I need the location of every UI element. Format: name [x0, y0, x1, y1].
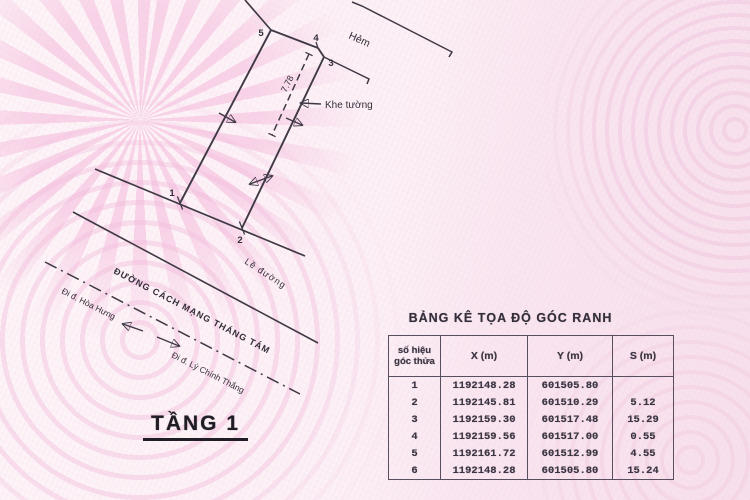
header-corner-id-line2: góc thửa: [389, 356, 440, 367]
alley-label: Hẻm: [347, 30, 372, 50]
cell-y: 601517.00: [528, 428, 613, 445]
table-header-row: số hiệu góc thửa X (m) Y (m) S (m): [389, 336, 674, 377]
cell-n: 1: [389, 377, 441, 395]
cell-n: 5: [389, 445, 441, 462]
cell-n: 4: [389, 428, 441, 445]
header-corner-id: số hiệu góc thửa: [389, 336, 441, 377]
direction-arrow-right: [157, 337, 179, 346]
cell-y: 601505.80: [528, 377, 613, 395]
wall-gap-pointer-arrow: [301, 103, 321, 104]
cell-y: 601512.99: [528, 445, 613, 462]
cell-s: 4.55: [613, 445, 674, 462]
boundary-coordinate-table: số hiệu góc thửa X (m) Y (m) S (m) 1 119…: [388, 335, 674, 480]
coordinate-table-title: BẢNG KÊ TỌA ĐỘ GÓC RANH: [378, 311, 643, 325]
direction-label-hoa-hung: Đi đ. Hòa Hưng: [60, 286, 117, 322]
table-row: 5 1192161.72 601512.99 4.55: [389, 445, 674, 462]
parcel-edge-3-4: [318, 48, 324, 57]
wall-arrow-bottom-edge: [250, 176, 272, 184]
cell-s: 5.12: [613, 394, 674, 411]
corner-label-4: 4: [313, 33, 319, 44]
table-row: 2 1192145.81 601510.29 5.12: [389, 394, 674, 411]
cell-s: 0.55: [613, 428, 674, 445]
direction-arrow-left: [123, 324, 143, 331]
cell-x: 1192148.28: [441, 462, 528, 480]
road-centerline: [45, 262, 300, 394]
floor-title: TẦNG 1: [143, 412, 248, 441]
corner-label-5: 5: [258, 28, 264, 39]
table-row: 6 1192148.28 601505.80 15.24: [389, 462, 674, 480]
cell-x: 1192159.30: [441, 411, 528, 428]
header-corner-id-line1: số hiệu: [389, 345, 440, 356]
header-s: S (m): [613, 336, 674, 377]
scanned-land-certificate-page: 1 2 3 4 5 Hẻm Khe tường 7.78 Lề đường ĐƯ…: [0, 0, 750, 500]
cell-s: 15.24: [613, 462, 674, 480]
wall-gap-tick-bottom: [268, 133, 275, 136]
corner-label-3: 3: [328, 58, 333, 69]
table-row: 3 1192159.30 601517.48 15.29: [389, 411, 674, 428]
cell-s: [613, 377, 674, 395]
sidewalk-boundary-line: [95, 169, 305, 256]
wall-gap-dashed-line: [272, 54, 309, 135]
parcel-edge-4-5: [271, 30, 318, 48]
cell-n: 3: [389, 411, 441, 428]
cell-n: 6: [389, 462, 441, 480]
table-row: 4 1192159.56 601517.00 0.55: [389, 428, 674, 445]
neighbor-boundary-line: [245, 0, 271, 30]
corner-label-2: 2: [237, 235, 242, 246]
table-row: 1 1192148.28 601505.80: [389, 377, 674, 395]
header-y: Y (m): [528, 336, 613, 377]
wall-gap-label: Khe tường: [325, 100, 373, 111]
curb-label: Lề đường: [243, 256, 288, 290]
cell-x: 1192159.56: [441, 428, 528, 445]
cell-y: 601505.80: [528, 462, 613, 480]
corner-label-1: 1: [169, 188, 175, 199]
road-name-label: ĐƯỜNG CÁCH MẠNG THÁNG TÁM: [112, 265, 272, 356]
cell-y: 601517.48: [528, 411, 613, 428]
cell-s: 15.29: [613, 411, 674, 428]
cell-x: 1192145.81: [441, 394, 528, 411]
wall-gap-dimension: 7.78: [279, 74, 296, 94]
cell-n: 2: [389, 394, 441, 411]
cell-y: 601510.29: [528, 394, 613, 411]
direction-label-ly-chinh-thang: Đi đ. Lý Chính Thắng: [170, 350, 246, 395]
header-x: X (m): [441, 336, 528, 377]
cell-x: 1192148.28: [441, 377, 528, 395]
cell-x: 1192161.72: [441, 445, 528, 462]
